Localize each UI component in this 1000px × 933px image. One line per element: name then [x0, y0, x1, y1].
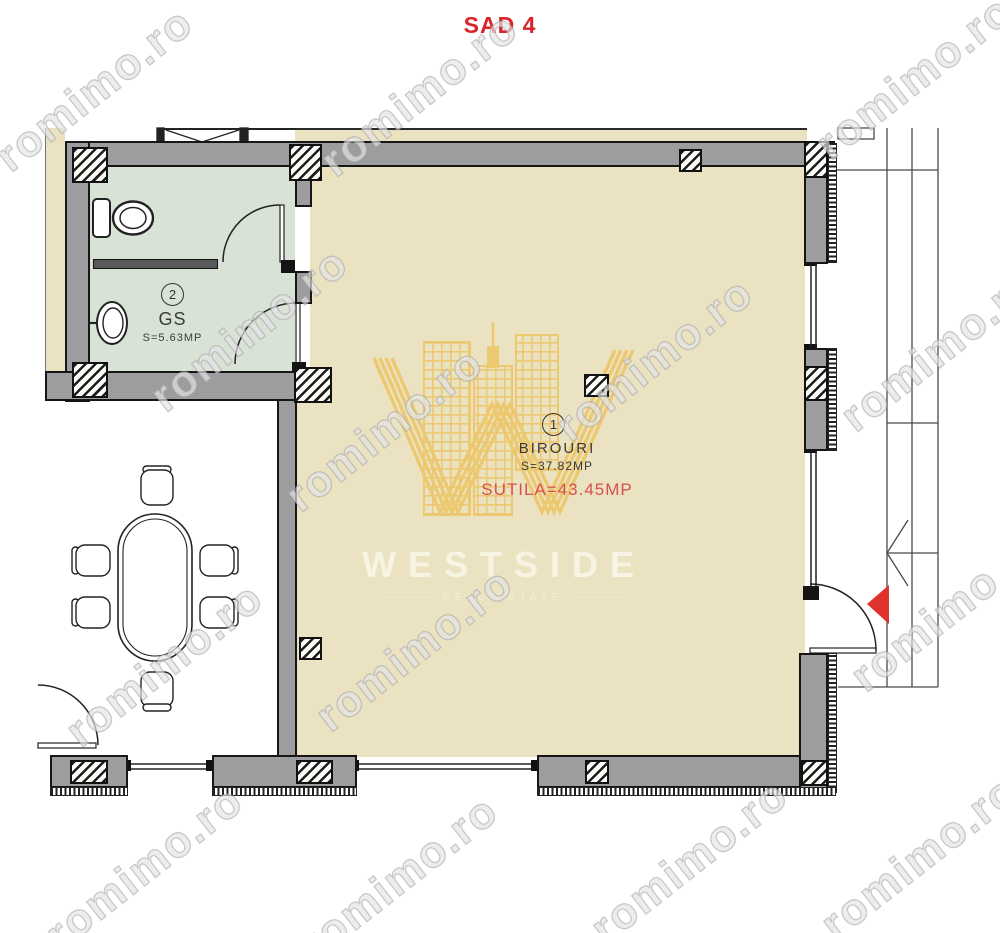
bathroom-door-lower: [235, 303, 300, 364]
bathroom-area: S=5.63MP: [135, 332, 210, 344]
bathroom-name: GS: [135, 309, 210, 330]
insulation-right-2: [828, 348, 837, 451]
meeting-table: [118, 514, 192, 661]
insulation-bottom-2: [212, 787, 357, 796]
window-bottom-center: [356, 764, 538, 769]
office-usable-area: SUTILA=43.45MP: [467, 480, 647, 500]
insulation-right-1: [828, 143, 837, 263]
window-right-upper: [811, 263, 816, 348]
chair-top: [141, 466, 173, 505]
wall-right-upper: [804, 176, 828, 264]
westside-tagline-row: REAL ESTATE: [383, 592, 623, 603]
chair-left-2: [72, 597, 110, 628]
entrance-triangle-marker: [867, 585, 889, 624]
chair-right-2: [200, 597, 238, 628]
chair-left-1: [72, 545, 110, 576]
exterior-door: [810, 584, 876, 653]
insulation-right-3: [828, 653, 837, 793]
tagline-dash-right: [571, 597, 623, 598]
office-number: 1: [550, 417, 557, 432]
column-meeting-corner: [294, 367, 332, 403]
westside-tagline: REAL ESTATE: [443, 592, 564, 603]
meeting-room-door: [38, 685, 98, 748]
plan-title: SAD 4: [0, 12, 1000, 39]
office-area: S=37.82MP: [502, 459, 612, 473]
office-name: BIROURI: [502, 440, 612, 457]
column-interior-wall-lower: [299, 637, 322, 660]
column-bathroom-bottom-left: [72, 362, 108, 398]
insulation-bottom-1: [50, 787, 128, 796]
wall-top: [65, 141, 835, 167]
bathroom-door-upper: [223, 205, 284, 262]
column-top-wall-small: [679, 149, 702, 172]
insulation-bottom-3: [537, 787, 836, 796]
tagline-dash-left: [383, 597, 435, 598]
column-bottom-2: [296, 760, 333, 784]
bathroom-number: 2: [169, 287, 176, 302]
door-hinge-block-exterior: [803, 586, 819, 600]
column-right-mid: [804, 366, 828, 401]
column-bottom-3: [585, 760, 609, 784]
wall-interior-vertical: [277, 399, 297, 759]
column-top-left: [72, 147, 108, 183]
column-bottom-1: [70, 760, 108, 784]
floorplan-canvas: SAD 4 2 GS S=5.63MP 1 BIROURI S=37.82MP …: [0, 0, 1000, 933]
chair-right-1: [200, 545, 238, 576]
door-hinge-block-upper: [281, 260, 295, 273]
chair-bottom: [141, 672, 173, 711]
bathroom-partition: [93, 259, 218, 269]
column-top-right-corner: [804, 141, 828, 178]
column-top-wall-left: [289, 144, 322, 181]
window-right-lower: [811, 451, 816, 586]
wall-bathroom-right-mid: [295, 271, 312, 304]
toilet-icon: [93, 199, 153, 237]
wall-bottom-pier-3: [537, 755, 829, 788]
column-bottom-right-corner: [801, 760, 828, 786]
window-bottom-left: [127, 764, 213, 769]
wall-bottom-pier-2: [212, 755, 357, 788]
westside-wordmark: WESTSIDE: [358, 544, 650, 586]
bathroom-number-badge: 2: [161, 283, 184, 306]
column-office-freestanding: [584, 374, 609, 397]
sink-icon: [90, 302, 127, 344]
office-number-badge: 1: [542, 413, 565, 436]
lineart-layer: [0, 0, 1000, 933]
